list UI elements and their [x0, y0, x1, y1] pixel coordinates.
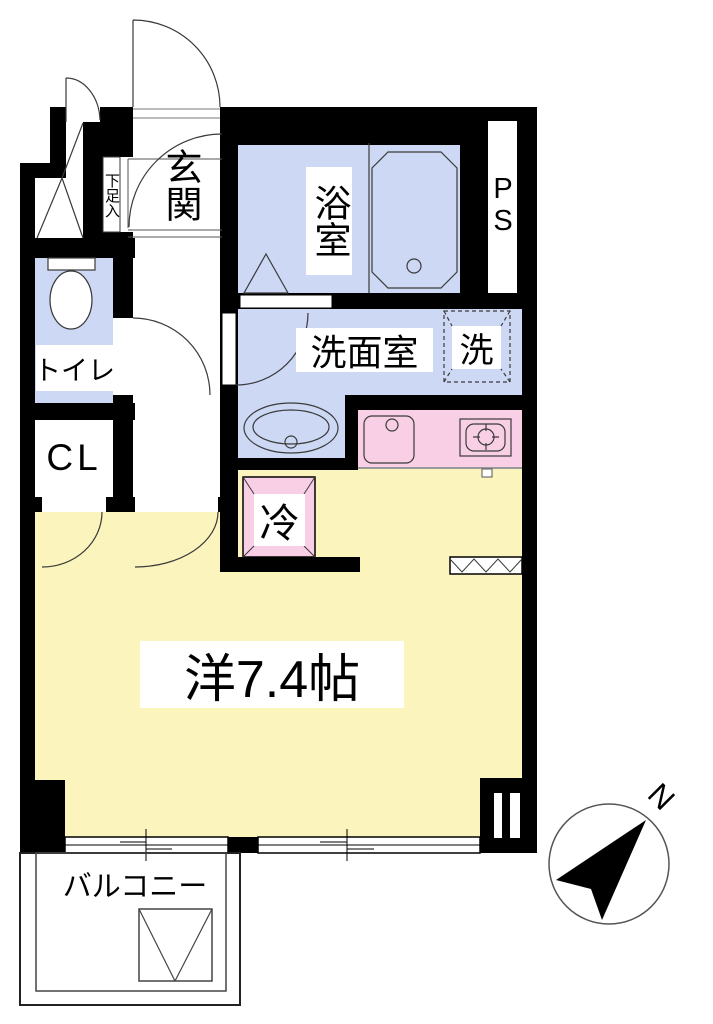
bathroom-label: 浴室 — [306, 167, 352, 275]
toilet-label: トイレ — [36, 345, 113, 391]
compass — [549, 804, 669, 924]
bathroom-door-panel — [240, 295, 332, 308]
wall-window-mid — [228, 837, 258, 853]
pipe-space-label: PS — [487, 157, 518, 253]
closet-door-opening — [42, 497, 106, 512]
shoe-cabinet-label: 下足入 — [103, 162, 120, 228]
zigzag-strip — [450, 557, 522, 574]
duct-slot — [510, 793, 520, 838]
balcony-equipment-box — [139, 909, 212, 981]
storage-door-arc — [66, 78, 100, 122]
wall-kitchen-top — [345, 395, 522, 410]
counter-knob — [482, 469, 492, 477]
toilet-tank — [48, 258, 95, 270]
wall-segment — [103, 122, 133, 157]
balcony-equipment-mark — [139, 909, 212, 981]
toilet-bowl — [50, 271, 92, 329]
closet-label: CL — [37, 436, 111, 480]
entrance-threshold-lines — [133, 109, 220, 118]
entrance-label: 玄関 — [159, 138, 201, 232]
hall-door-opening — [135, 497, 218, 512]
entrance-door-arc — [133, 20, 220, 107]
main-room-label: 洋7.4帖 — [140, 641, 404, 708]
wall-right — [522, 309, 537, 853]
washer-space-label: 洗 — [452, 325, 501, 369]
main-room-floor-lower — [34, 780, 480, 837]
wall-bottom-left-block — [20, 780, 65, 853]
floorplan: 玄関 下足入 浴室 PS 洗面室 洗 トイレ CL 冷 洋7.4帖 バルコニー … — [0, 0, 713, 1024]
wall-bottom-right-block — [480, 778, 537, 853]
toilet-door-arc — [133, 318, 210, 395]
wall-toilet-cl-divider — [20, 403, 135, 420]
washroom-door-leaf — [222, 313, 236, 385]
balcony-label: バルコニー — [44, 866, 226, 902]
washroom-label: 洗面室 — [296, 328, 433, 372]
wall-partition — [220, 557, 360, 572]
compass-north-arrow-icon — [556, 820, 646, 920]
duct-slot — [494, 793, 502, 838]
refrigerator-label: 冷 — [253, 493, 306, 547]
wall-segment — [83, 122, 103, 242]
wall-nook-top — [238, 458, 358, 470]
wall-segment — [100, 107, 133, 122]
wall-toilet-top — [20, 238, 135, 258]
toilet-door-opening — [113, 318, 133, 395]
